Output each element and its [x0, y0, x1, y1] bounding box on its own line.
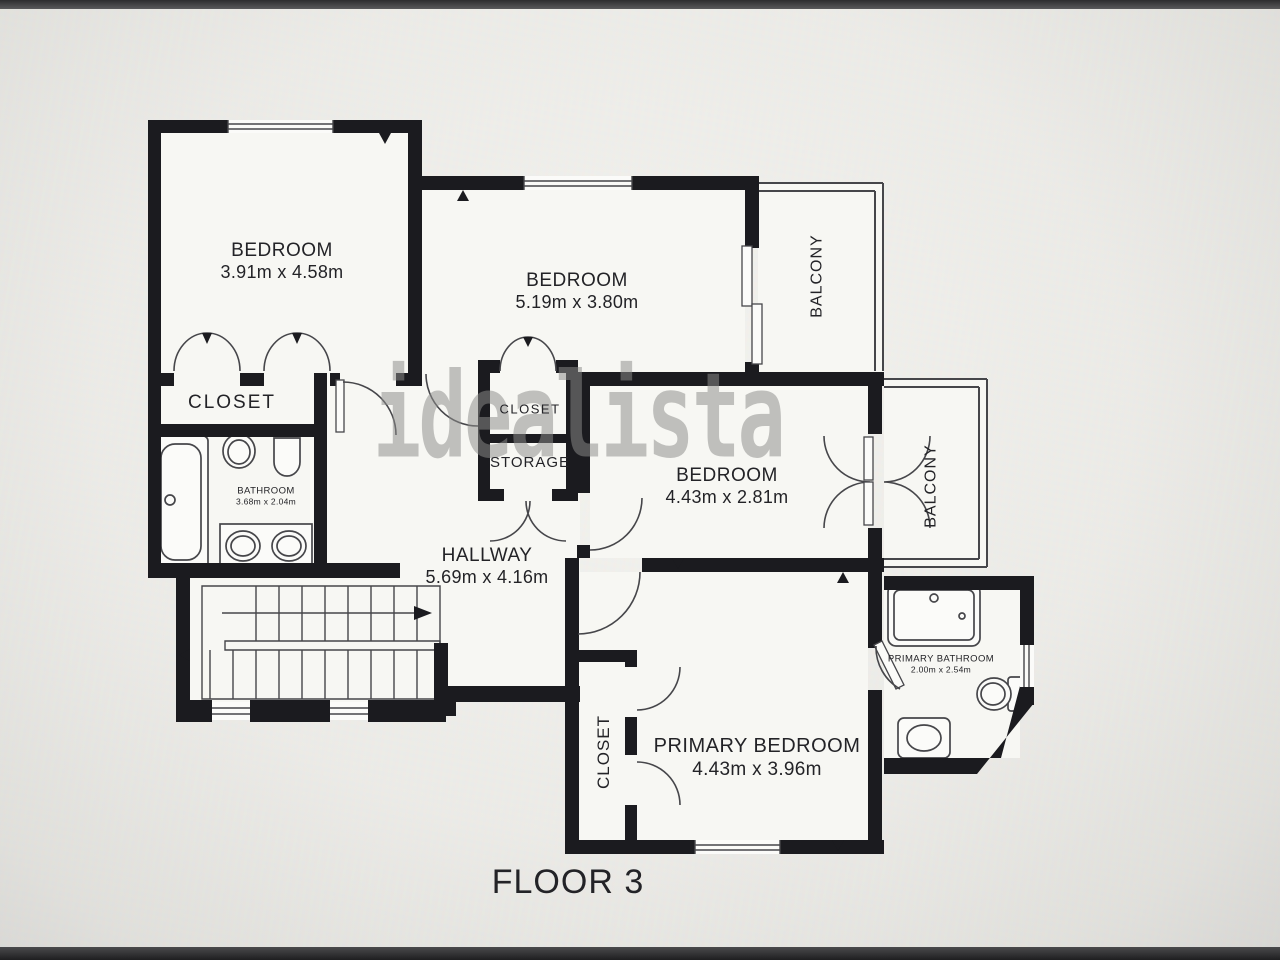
room-label-bathroom: BATHROOM 3.68m x 2.04m: [236, 485, 296, 506]
floorplan-drawing: [0, 0, 1280, 960]
room-label-bedroom2: BEDROOM 5.19m x 3.80m: [516, 270, 639, 314]
room-label-bedroom1: BEDROOM 3.91m x 4.58m: [221, 240, 344, 284]
room-label-balcony-top: BALCONY: [809, 234, 828, 317]
primary-bathroom-name: PRIMARY BATHROOM: [888, 653, 994, 664]
room-label-closet-primary: CLOSET: [594, 715, 614, 789]
bedroom2-name: BEDROOM: [516, 270, 639, 292]
room-label-closet-left: CLOSET: [188, 392, 276, 414]
hallway-name: HALLWAY: [426, 545, 549, 567]
room-label-bedroom3: BEDROOM 4.43m x 2.81m: [666, 465, 789, 509]
bedroom1-door-leaf: [336, 380, 344, 432]
bedroom1-name: BEDROOM: [221, 240, 344, 262]
closet-mid-name: CLOSET: [499, 401, 560, 416]
storage-name: STORAGE: [490, 454, 570, 471]
bedroom1-dims: 3.91m x 4.58m: [221, 263, 344, 284]
balcony-right-name: BALCONY: [923, 444, 940, 527]
closet-left-name: CLOSET: [188, 392, 276, 413]
primary-bedroom-dims: 4.43m x 3.96m: [654, 759, 861, 781]
floor-title-text: FLOOR 3: [492, 863, 644, 901]
floorplan-photo: idealista BEDROOM 3.91m x 4.58m BEDROOM …: [0, 0, 1280, 960]
closet-primary-name: CLOSET: [594, 715, 613, 789]
sliding-door-panel-2: [752, 304, 762, 364]
french-door-leaf-top: [864, 437, 873, 480]
primary-bedroom-name: PRIMARY BEDROOM: [654, 735, 861, 759]
sliding-door-panel-1: [742, 246, 752, 306]
bidet-icon: [274, 438, 300, 476]
room-label-hallway: HALLWAY 5.69m x 4.16m: [426, 545, 549, 589]
room-label-primary-bedroom: PRIMARY BEDROOM 4.43m x 3.96m: [654, 735, 861, 781]
bathroom-name: BATHROOM: [236, 485, 296, 496]
bedroom3-dims: 4.43m x 2.81m: [666, 488, 789, 509]
room-label-primary-bathroom: PRIMARY BATHROOM 2.00m x 2.54m: [888, 653, 994, 674]
balcony-top-name: BALCONY: [809, 234, 826, 317]
bathroom-dims: 3.68m x 2.04m: [236, 497, 296, 507]
primary-bathroom-dims: 2.00m x 2.54m: [888, 665, 994, 675]
bedroom2-dims: 5.19m x 3.80m: [516, 293, 639, 314]
room-label-storage: STORAGE: [490, 454, 570, 472]
room-label-balcony-right: BALCONY: [923, 444, 942, 527]
floor-title: FLOOR 3: [492, 862, 644, 902]
french-door-leaf-bottom: [864, 482, 873, 525]
room-label-closet-mid: CLOSET: [499, 401, 560, 416]
bedroom3-name: BEDROOM: [666, 465, 789, 487]
hallway-dims: 5.69m x 4.16m: [426, 568, 549, 589]
